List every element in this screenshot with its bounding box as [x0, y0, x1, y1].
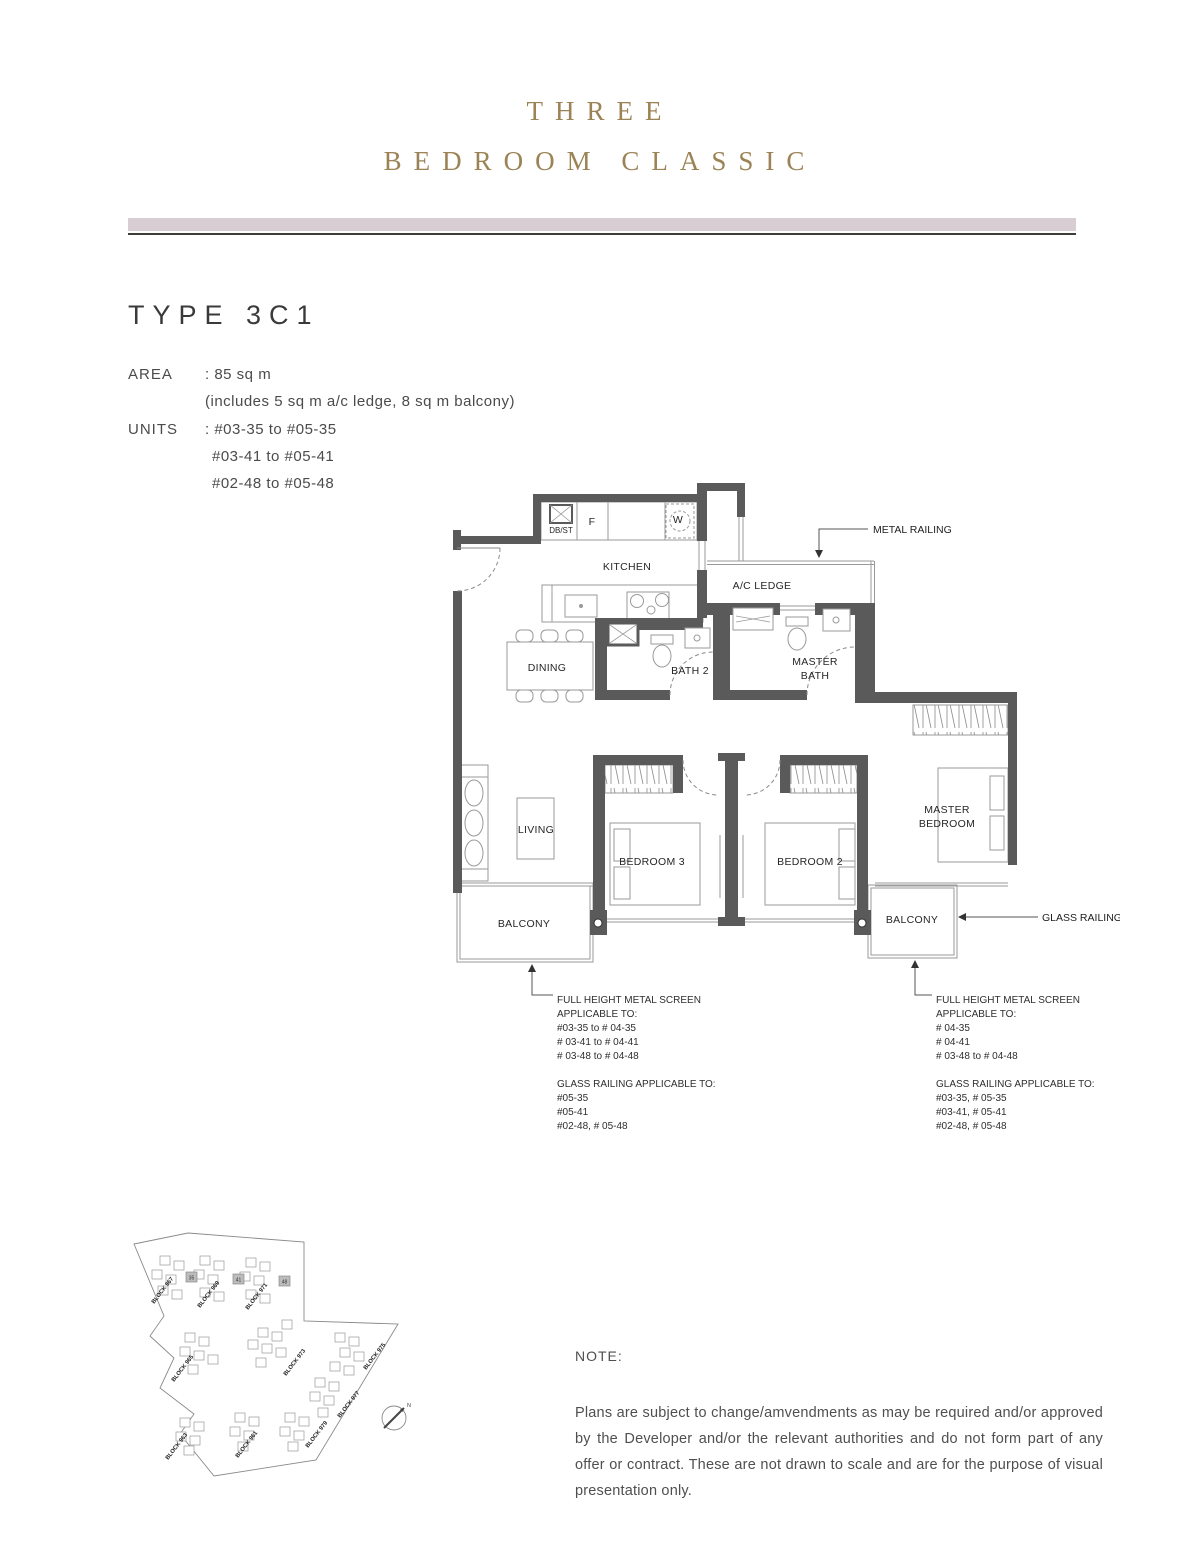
page-title-line1: THREE: [0, 96, 1200, 127]
site-plan: 35 41 48: [130, 1228, 440, 1518]
compass-icon: N: [382, 1403, 411, 1430]
units-line-3: #02-48 to #05-48: [212, 475, 334, 492]
label-balcony-left: BALCONY: [498, 918, 550, 930]
bath2-shaft: [608, 623, 638, 645]
left-annotation: FULL HEIGHT METAL SCREEN APPLICABLE TO: …: [528, 964, 716, 1132]
annot-line: #02-48, # 05-48: [936, 1121, 1007, 1132]
kitchen-counter: [542, 585, 703, 622]
label-washer: W: [673, 514, 683, 526]
annot-line: FULL HEIGHT METAL SCREEN: [557, 995, 701, 1006]
label-master-bath-2: BATH: [801, 670, 829, 682]
master-shower: [733, 608, 773, 630]
page-title-line2: BEDROOM CLASSIC: [0, 146, 1200, 177]
right-annotation: FULL HEIGHT METAL SCREEN APPLICABLE TO: …: [911, 960, 1095, 1132]
site-units: 35 41 48: [152, 1256, 364, 1455]
note-label: NOTE:: [575, 1348, 623, 1364]
label-master-bedroom-1: MASTER: [924, 804, 970, 816]
master-bath-fixtures: [786, 609, 850, 650]
type-heading: TYPE 3C1: [128, 300, 320, 331]
annot-line: APPLICABLE TO:: [936, 1009, 1016, 1020]
note-body: Plans are subject to change/amvendments …: [575, 1400, 1103, 1504]
annot-line: #03-35 to # 04-35: [557, 1023, 636, 1034]
glass-railing-callout: GLASS RAILING: [958, 912, 1120, 924]
block-label: BLOCK 977: [337, 1390, 361, 1419]
compass-n-label: N: [407, 1403, 411, 1409]
sofa: [460, 765, 488, 881]
annot-line: #03-41, # 05-41: [936, 1107, 1007, 1118]
divider-rule: [128, 233, 1076, 235]
wardrobe-master: [913, 705, 1008, 735]
unit-48-label: 48: [282, 1280, 288, 1286]
label-dbst: DB/ST: [549, 526, 573, 535]
area-value: : 85 sq m: [205, 366, 271, 383]
area-label: AREA: [128, 366, 173, 383]
annot-line: # 03-48 to # 04-48: [936, 1051, 1018, 1062]
metal-railing-callout: METAL RAILING: [815, 524, 952, 558]
label-glass-railing: GLASS RAILING: [1042, 912, 1120, 924]
annot-line: #03-35, # 05-35: [936, 1093, 1007, 1104]
units-line-1: : #03-35 to #05-35: [205, 421, 337, 438]
area-note: (includes 5 sq m a/c ledge, 8 sq m balco…: [205, 393, 515, 410]
annot-line: # 03-48 to # 04-48: [557, 1051, 639, 1062]
label-living: LIVING: [518, 824, 554, 836]
annot-line: #05-41: [557, 1107, 589, 1118]
label-dining: DINING: [528, 662, 567, 674]
units-line-2: #03-41 to #05-41: [212, 448, 334, 465]
annot-line: APPLICABLE TO:: [557, 1009, 637, 1020]
label-fridge: F: [589, 516, 596, 528]
annot-line: #05-35: [557, 1093, 589, 1104]
label-kitchen: KITCHEN: [603, 561, 651, 573]
annot-line: GLASS RAILING APPLICABLE TO:: [936, 1079, 1095, 1090]
dbst-cabinet: [550, 505, 572, 523]
annot-line: # 04-41: [936, 1037, 970, 1048]
units-label: UNITS: [128, 421, 178, 438]
annot-line: # 03-41 to # 04-41: [557, 1037, 639, 1048]
label-balcony-right: BALCONY: [886, 914, 938, 926]
divider-bar: [128, 218, 1076, 231]
label-bath2: BATH 2: [671, 665, 709, 677]
unit-41-label: 41: [236, 1278, 242, 1284]
annot-line: # 04-35: [936, 1023, 970, 1034]
wardrobe-bedroom2: [790, 765, 857, 793]
annot-line: GLASS RAILING APPLICABLE TO:: [557, 1079, 716, 1090]
block-label: BLOCK 967: [151, 1276, 175, 1305]
label-master-bath-1: MASTER: [792, 656, 838, 668]
label-bedroom3: BEDROOM 3: [619, 856, 685, 868]
block-label: BLOCK 973: [283, 1348, 308, 1377]
annot-line: #02-48, # 05-48: [557, 1121, 628, 1132]
block-label: BLOCK 975: [363, 1342, 388, 1371]
label-master-bedroom-2: BEDROOM: [919, 818, 975, 830]
floor-plan: DB/ST F W KITCHEN A/C LEDGE DINING BATH …: [440, 478, 1120, 1138]
unit-35-label: 35: [189, 1276, 195, 1282]
label-metal-railing: METAL RAILING: [873, 524, 952, 536]
label-bedroom2: BEDROOM 2: [777, 856, 843, 868]
label-ac-ledge: A/C LEDGE: [733, 580, 792, 592]
brochure-page: THREE BEDROOM CLASSIC TYPE 3C1 AREA : 85…: [0, 0, 1200, 1564]
bath2-fixtures: [651, 628, 710, 667]
wardrobe-bedroom3: [605, 765, 673, 793]
annot-line: FULL HEIGHT METAL SCREEN: [936, 995, 1080, 1006]
